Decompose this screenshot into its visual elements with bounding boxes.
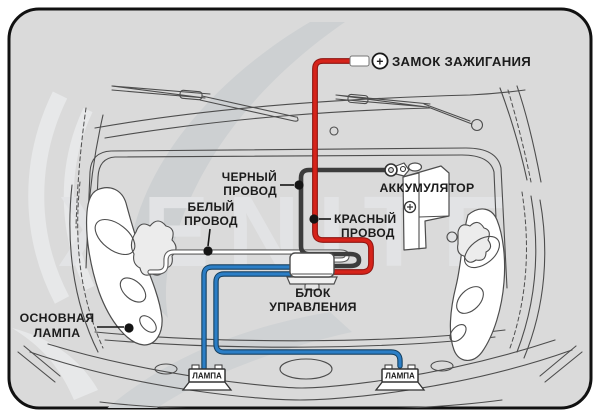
black-wire-label-2: ПРОВОД [223, 184, 277, 198]
black-wire-label-1: ЧЕРНЫЙ [222, 169, 277, 184]
control-unit-label-2: УПРАВЛЕНИЯ [269, 300, 356, 314]
main-lamp-label-1: ОСНОВНАЯ [20, 311, 95, 325]
left-lamp-label: ЛАМПА [192, 372, 222, 381]
left-lamp-housing-bumps [131, 221, 176, 275]
wiring-diagram-svg: XENITE [0, 0, 600, 419]
ignition-lock-label: ЗАМОК ЗАЖИГАНИЯ [392, 54, 531, 69]
black-wire-dot [294, 180, 303, 189]
wiring-diagram-image: XENITE [0, 0, 600, 419]
red-wire-label-1: КРАСНЫЙ [334, 211, 396, 226]
red-wire-label-2: ПРОВОД [341, 226, 395, 240]
right-lamp-label: ЛАМПА [385, 372, 415, 381]
control-unit-label-1: БЛОК [295, 286, 331, 300]
white-wire-label-1: БЕЛЫЙ [188, 199, 235, 214]
white-wire-dot [203, 246, 212, 255]
plus-sign: + [376, 55, 383, 69]
main-lamp-dot [124, 323, 133, 332]
right-fog-lamp: ЛАМПА [376, 365, 424, 390]
control-unit [287, 253, 337, 290]
white-wire-label-2: ПРОВОД [184, 214, 238, 228]
battery-label: АККУМУЛЯТОР [379, 181, 474, 195]
battery-post-icon [409, 163, 422, 171]
red-wire-dot [309, 214, 318, 223]
main-lamp-label-2: ЛАМПА [34, 326, 81, 340]
left-fog-lamp: ЛАМПА [183, 365, 231, 390]
